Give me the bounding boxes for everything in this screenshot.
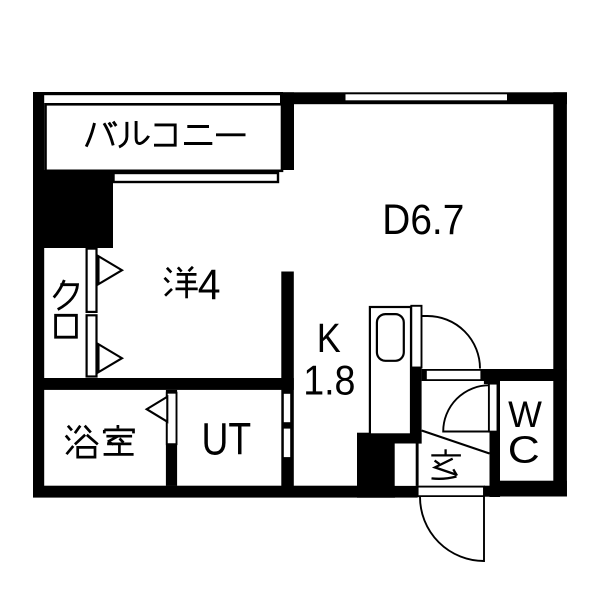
svg-text:4: 4	[198, 262, 221, 309]
svg-text:1.8: 1.8	[303, 357, 355, 404]
svg-text:C: C	[508, 430, 540, 472]
svg-text:D6.7: D6.7	[382, 197, 464, 244]
svg-text:UT: UT	[202, 414, 252, 465]
svg-text:K: K	[317, 315, 341, 361]
